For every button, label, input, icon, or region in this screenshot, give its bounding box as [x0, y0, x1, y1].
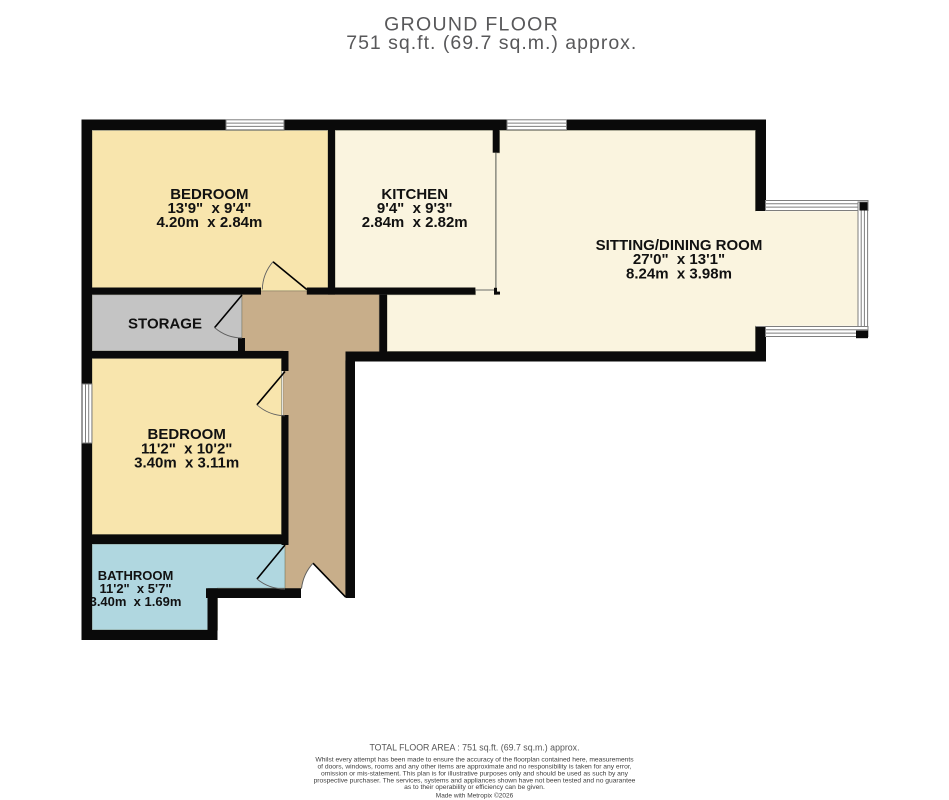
svg-text:STORAGE: STORAGE [128, 316, 202, 333]
svg-text:3.40m x 1.69m: 3.40m x 1.69m [90, 594, 182, 609]
svg-text:751 sq.ft. (69.7 sq.m.) approx: 751 sq.ft. (69.7 sq.m.) approx. [346, 32, 637, 54]
svg-text:TOTAL FLOOR AREA : 751 sq.ft.: TOTAL FLOOR AREA : 751 sq.ft. (69.7 sq.m… [369, 742, 579, 752]
svg-text:8.24m x 3.98m: 8.24m x 3.98m [626, 265, 732, 282]
svg-text:as to their operability or eff: as to their operability or efficiency ca… [404, 784, 545, 791]
svg-text:4.20m x 2.84m: 4.20m x 2.84m [156, 214, 262, 231]
svg-text:Whilst every attempt has been: Whilst every attempt has been made to en… [315, 756, 634, 763]
svg-text:2.84m x 2.82m: 2.84m x 2.82m [362, 214, 468, 231]
svg-text:omission or mis-statement. Thi: omission or mis-statement. This plan is … [321, 770, 629, 777]
svg-text:3.40m x 3.11m: 3.40m x 3.11m [134, 455, 239, 472]
svg-text:Made with Metropix ©2026: Made with Metropix ©2026 [436, 791, 514, 799]
